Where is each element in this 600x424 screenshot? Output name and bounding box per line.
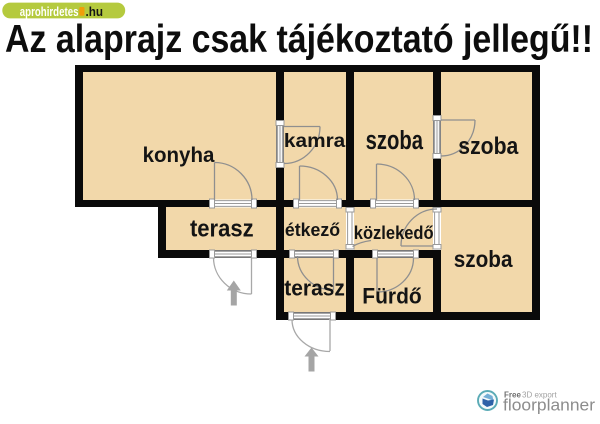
svg-text:terasz: terasz [190,215,254,242]
svg-text:floorplanner: floorplanner [503,396,595,415]
svg-text:terasz: terasz [284,276,345,301]
svg-text:közlekedő: közlekedő [354,222,434,243]
svg-text:Fürdő: Fürdő [362,283,421,308]
svg-text:szoba: szoba [366,127,424,155]
svg-text:szoba: szoba [454,246,513,272]
svg-text:aprohirdetes: aprohirdetes [20,5,79,19]
svg-text:étkező: étkező [285,220,340,240]
svg-text:szoba: szoba [458,133,518,160]
svg-text:.hu: .hu [86,5,104,19]
svg-text:kamra: kamra [284,130,345,152]
svg-text:Az alaprajz csak tájékoztató j: Az alaprajz csak tájékoztató jellegű!! [5,18,593,61]
svg-text:konyha: konyha [143,143,216,167]
